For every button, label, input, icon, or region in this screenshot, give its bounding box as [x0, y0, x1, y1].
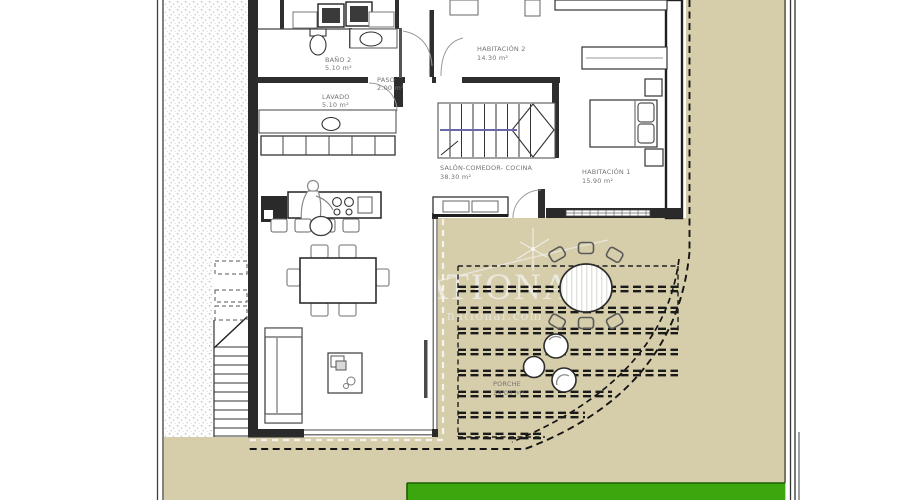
habitacion2-name: HABITACIÓN 2: [477, 44, 526, 53]
toilet-icon: [310, 35, 326, 55]
room-label-lavado: LAVADO 5.10 m²: [322, 93, 350, 109]
salon-area: 38.30 m²: [440, 173, 471, 181]
lavado-area: 5.10 m²: [322, 101, 349, 109]
salon-name: SALÓN-COMEDOR- COCINA: [440, 163, 533, 172]
bano2-name: BAÑO 2: [325, 55, 351, 64]
floor-plan-drawing: NATIONAL national.com: [0, 0, 900, 500]
habitacion1-area: 15.90 m²: [582, 177, 613, 185]
nightstand-icon: [645, 149, 663, 166]
wardrobe-top: [555, 0, 667, 10]
coffee-table-icon: [328, 353, 362, 393]
watermark-domain-text: national.com: [447, 308, 543, 324]
grass-strip: [407, 483, 785, 500]
lavado-name: LAVADO: [322, 93, 350, 101]
tv-icon: [424, 340, 428, 398]
floor-plan-page: NATIONAL national.com: [0, 0, 900, 500]
paso-name: PASO: [377, 76, 395, 84]
habitacion1-name: HABITACIÓN 1: [582, 167, 631, 176]
bano2-area: 5.10 m²: [325, 64, 352, 72]
porche-name: PORCHE: [493, 380, 521, 388]
nightstand-icon: [645, 79, 662, 96]
sink-icon: [360, 32, 382, 46]
room-label-bano2: BAÑO 2 5.10 m²: [325, 55, 352, 72]
laundry-sink-icon: [322, 118, 340, 131]
laundry-counter: [259, 110, 396, 155]
bedroom-window: [566, 210, 650, 216]
paso-area: 2.00 m²: [377, 84, 404, 92]
porche-area: 34.00 m²: [493, 389, 524, 397]
room-label-porche: PORCHE 34.00 m²: [493, 380, 524, 397]
habitacion2-area: 14.30 m²: [477, 54, 508, 62]
dining-table-icon: [300, 258, 376, 303]
interior-staircase: [438, 103, 555, 158]
outdoor-bench: [433, 197, 508, 216]
sofa-icon: [265, 328, 302, 423]
exterior-stair: [213, 258, 248, 437]
